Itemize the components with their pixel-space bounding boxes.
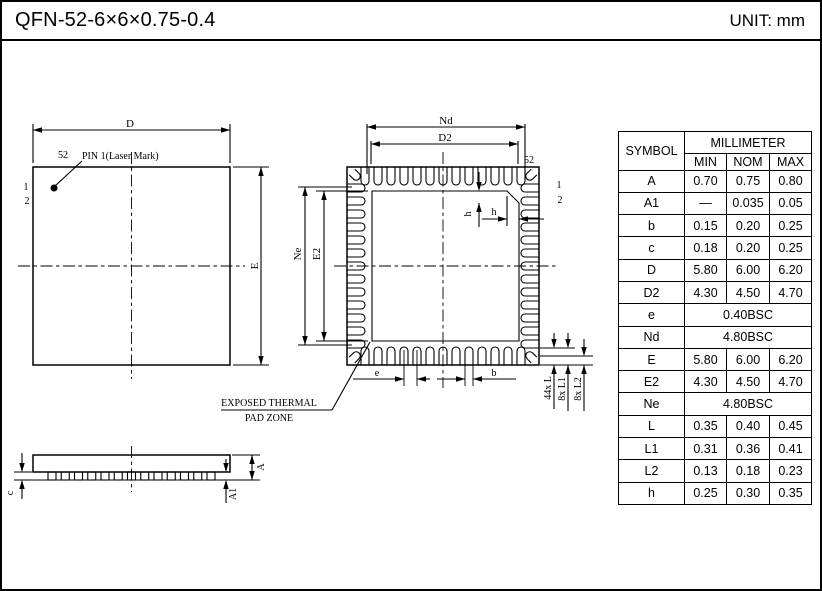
pin2-number: 2 <box>25 196 30 207</box>
span-cell: 4.80BSC <box>685 393 812 415</box>
side-view: c A A1 <box>5 446 267 503</box>
sym-cell: A <box>619 170 685 192</box>
datasheet-page: QFN-52-6×6×0.75-0.4 UNIT: mm D E 52 PIN … <box>0 0 822 591</box>
sym-cell: Nd <box>619 326 685 348</box>
max-cell: 0.35 <box>770 482 812 504</box>
dim-label-A: A <box>256 463 267 471</box>
min-cell: 0.35 <box>685 415 727 437</box>
table-row: h0.250.300.35 <box>619 482 812 504</box>
max-cell: 4.70 <box>770 281 812 303</box>
sym-cell: Ne <box>619 393 685 415</box>
table-row: e0.40BSC <box>619 304 812 326</box>
min-cell: 4.30 <box>685 371 727 393</box>
thermal-pad-note-line2: PAD ZONE <box>245 413 293 424</box>
bottom-view: Nd D2 Ne E2 52 1 2 h h e b 44x L 8x L1 8… <box>221 115 593 424</box>
unit-header-cell: MILLIMETER <box>685 132 812 154</box>
nom-cell: 0.30 <box>727 482 770 504</box>
sym-cell: L <box>619 415 685 437</box>
dim-label-D: D <box>126 118 134 130</box>
max-cell: 0.45 <box>770 415 812 437</box>
sym-cell: D <box>619 259 685 281</box>
sym-cell: L1 <box>619 438 685 460</box>
dim-label-h-horizontal: h <box>492 207 497 218</box>
table-row: L0.350.400.45 <box>619 415 812 437</box>
col-header-nom: NOM <box>727 154 770 170</box>
dim-label-Ne: Ne <box>292 247 304 260</box>
span-cell: 4.80BSC <box>685 326 812 348</box>
sym-cell: E <box>619 348 685 370</box>
table-row: Nd4.80BSC <box>619 326 812 348</box>
pin1-number-bottom: 1 <box>557 180 562 191</box>
nom-cell: 0.035 <box>727 192 770 214</box>
top-view: D E 52 PIN 1(Laser Mark) 1 2 <box>18 118 269 379</box>
nom-cell: 0.75 <box>727 170 770 192</box>
sym-cell: A1 <box>619 192 685 214</box>
symbol-header-cell: SYMBOL <box>619 132 685 171</box>
min-cell: 4.30 <box>685 281 727 303</box>
max-cell: 6.20 <box>770 348 812 370</box>
max-cell: 4.70 <box>770 371 812 393</box>
sym-cell: L2 <box>619 460 685 482</box>
min-cell: 0.18 <box>685 237 727 259</box>
nom-cell: 6.00 <box>727 259 770 281</box>
max-cell: 0.41 <box>770 438 812 460</box>
min-cell: 0.15 <box>685 215 727 237</box>
nom-cell: 4.50 <box>727 281 770 303</box>
nom-cell: 0.36 <box>727 438 770 460</box>
pin52-label: 52 <box>58 150 68 161</box>
nom-cell: 0.20 <box>727 237 770 259</box>
dim-label-e: e <box>375 368 380 379</box>
max-cell: 0.80 <box>770 170 812 192</box>
dim-label-Nd: Nd <box>439 115 453 127</box>
max-cell: 0.05 <box>770 192 812 214</box>
max-cell: 0.25 <box>770 237 812 259</box>
min-cell: 0.25 <box>685 482 727 504</box>
min-cell: 0.13 <box>685 460 727 482</box>
min-cell: 5.80 <box>685 348 727 370</box>
thermal-pad-note-line1: EXPOSED THERMAL <box>221 398 317 409</box>
min-cell: 0.70 <box>685 170 727 192</box>
sym-cell: D2 <box>619 281 685 303</box>
nom-cell: 4.50 <box>727 371 770 393</box>
col-header-max: MAX <box>770 154 812 170</box>
dim-label-b: b <box>492 368 497 379</box>
nom-cell: 6.00 <box>727 348 770 370</box>
col-header-min: MIN <box>685 154 727 170</box>
table-row: L10.310.360.41 <box>619 438 812 460</box>
dim-label-44xL: 44x L <box>543 376 554 400</box>
span-cell: 0.40BSC <box>685 304 812 326</box>
max-cell: 0.23 <box>770 460 812 482</box>
sym-cell: h <box>619 482 685 504</box>
min-cell: 0.31 <box>685 438 727 460</box>
dim-label-E: E <box>249 262 261 269</box>
nom-cell: 0.20 <box>727 215 770 237</box>
dim-label-A1: A1 <box>228 488 239 500</box>
table-row: D5.806.006.20 <box>619 259 812 281</box>
max-cell: 0.25 <box>770 215 812 237</box>
sym-cell: c <box>619 237 685 259</box>
dimension-table: SYMBOL MILLIMETER MIN NOM MAX A0.700.750… <box>618 131 812 505</box>
table-row: L20.130.180.23 <box>619 460 812 482</box>
table-row: b0.150.200.25 <box>619 215 812 237</box>
sym-cell: b <box>619 215 685 237</box>
max-cell: 6.20 <box>770 259 812 281</box>
pin1-number: 1 <box>24 182 29 193</box>
table-row: A0.700.750.80 <box>619 170 812 192</box>
table-row: D24.304.504.70 <box>619 281 812 303</box>
table-row: A1—0.0350.05 <box>619 192 812 214</box>
dim-label-h-vertical: h <box>463 212 474 217</box>
table-row: E5.806.006.20 <box>619 348 812 370</box>
min-cell: 5.80 <box>685 259 727 281</box>
dim-label-8xL1: 8x L1 <box>557 377 568 401</box>
table-row: c0.180.200.25 <box>619 237 812 259</box>
table-row: Ne4.80BSC <box>619 393 812 415</box>
dim-label-8xL2: 8x L2 <box>573 377 584 401</box>
dim-label-c: c <box>5 490 16 495</box>
dim-label-E2: E2 <box>311 248 323 260</box>
dim-label-D2: D2 <box>438 132 451 144</box>
pin2-number-bottom: 2 <box>558 195 563 206</box>
nom-cell: 0.40 <box>727 415 770 437</box>
pin1-laser-mark-note: PIN 1(Laser Mark) <box>82 151 159 162</box>
nom-cell: 0.18 <box>727 460 770 482</box>
sym-cell: e <box>619 304 685 326</box>
min-cell: — <box>685 192 727 214</box>
table-row: E24.304.504.70 <box>619 371 812 393</box>
sym-cell: E2 <box>619 371 685 393</box>
